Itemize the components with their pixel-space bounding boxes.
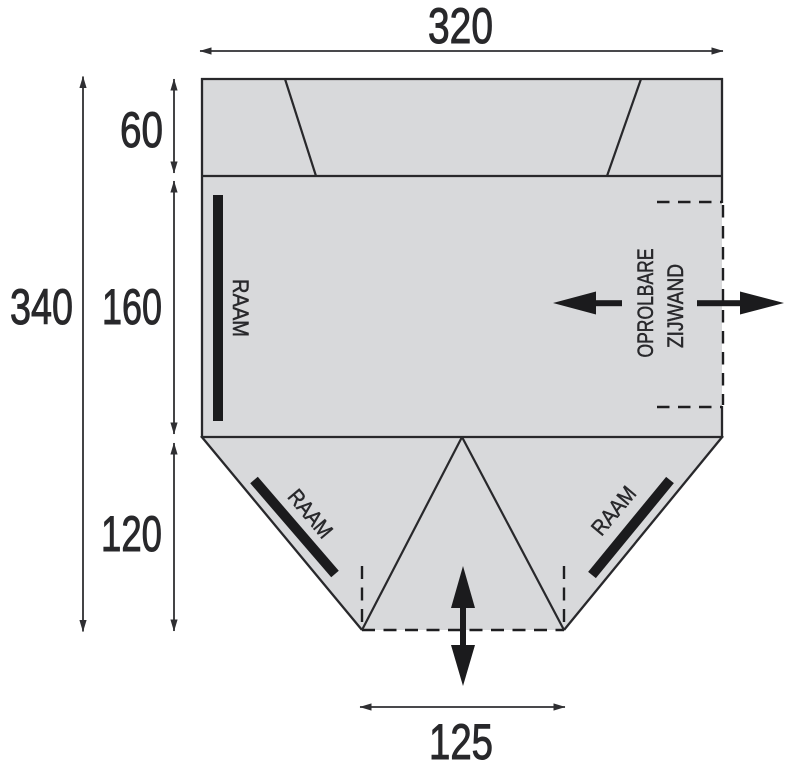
svg-text:125: 125	[429, 714, 493, 768]
svg-text:160: 160	[102, 279, 162, 335]
svg-text:320: 320	[428, 0, 493, 54]
svg-text:OPROLBARE: OPROLBARE	[633, 249, 658, 358]
svg-text:RAAM: RAAM	[228, 279, 253, 337]
svg-text:120: 120	[101, 506, 162, 562]
svg-text:340: 340	[10, 279, 73, 335]
svg-text:60: 60	[120, 102, 163, 158]
svg-text:ZIJWAND: ZIJWAND	[663, 264, 688, 348]
